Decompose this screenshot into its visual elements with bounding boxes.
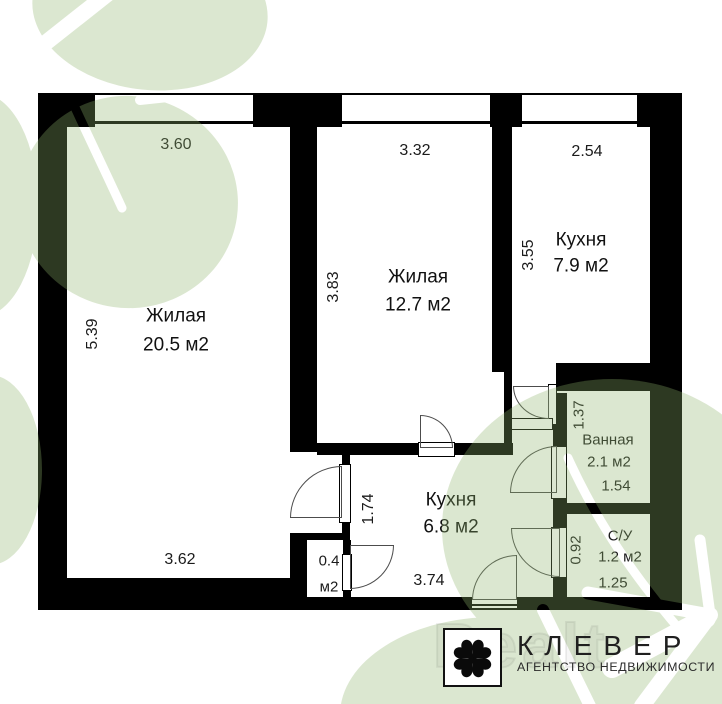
room-label: С/У	[608, 529, 633, 544]
dimension-label: 3.32	[399, 143, 430, 159]
wall	[290, 533, 342, 540]
dimension-label: 1.74	[361, 493, 377, 524]
dimension-label: 3.60	[160, 137, 191, 153]
room-area-label: 12.7 м2	[385, 296, 451, 315]
room-area-label: 7.9 м2	[553, 257, 608, 276]
dimension-label: 3.55	[521, 239, 537, 270]
dimension-label: 2.54	[571, 144, 602, 160]
wall	[504, 372, 512, 443]
wall	[553, 498, 567, 528]
room-label: Ванная	[582, 433, 633, 448]
dimension-label: 1.54	[601, 479, 630, 494]
room-area-label: 2.1 м2	[587, 455, 631, 470]
dimension-label: 1.25	[598, 576, 627, 591]
wall	[650, 95, 680, 608]
room-area-label: 6.8 м2	[423, 518, 478, 537]
room-area-label: 1.2 м2	[598, 550, 642, 565]
wall	[342, 522, 350, 540]
clover-logo-icon	[448, 633, 497, 682]
wall	[317, 443, 420, 455]
dimension-label: 3.83	[326, 271, 342, 302]
wall	[556, 363, 680, 391]
room-label: Жилая	[146, 307, 206, 326]
wall	[40, 95, 67, 608]
agency-name: КЛЕВЕР	[517, 632, 692, 660]
dimension-label: 3.74	[413, 573, 444, 589]
window	[342, 95, 490, 124]
wall	[40, 578, 307, 608]
agency-logo	[443, 628, 502, 687]
room-label: Кухня	[426, 491, 477, 510]
dimension-label: 1.37	[572, 400, 587, 429]
window	[95, 95, 253, 124]
wall	[492, 122, 512, 372]
brand-footer: Realt КЛЕВЕР	[0, 618, 722, 704]
room-label: 0.4	[319, 554, 340, 569]
wall	[290, 540, 307, 578]
door-jamb	[511, 418, 553, 430]
dimension-label: 5.39	[85, 318, 101, 349]
wall	[290, 122, 317, 452]
room-label: Жилая	[388, 268, 448, 287]
room-area-label: м2	[320, 580, 339, 595]
wall	[567, 503, 650, 514]
floor-plan-page: Жилая 20.5 м2 Жилая 12.7 м2 Кухня 7.9 м2…	[0, 0, 722, 704]
window	[522, 95, 637, 124]
outer-boundary-line	[38, 93, 682, 610]
agency-tagline: АГЕНТСТВО НЕДВИЖИМОСТИ	[517, 661, 715, 673]
wall	[307, 597, 472, 608]
room-label: Кухня	[556, 231, 607, 250]
wall	[517, 597, 680, 608]
room-area-label: 20.5 м2	[143, 336, 209, 355]
wall	[455, 443, 513, 455]
dimension-label: 3.62	[164, 552, 195, 568]
dimension-label: 0.92	[569, 535, 584, 564]
